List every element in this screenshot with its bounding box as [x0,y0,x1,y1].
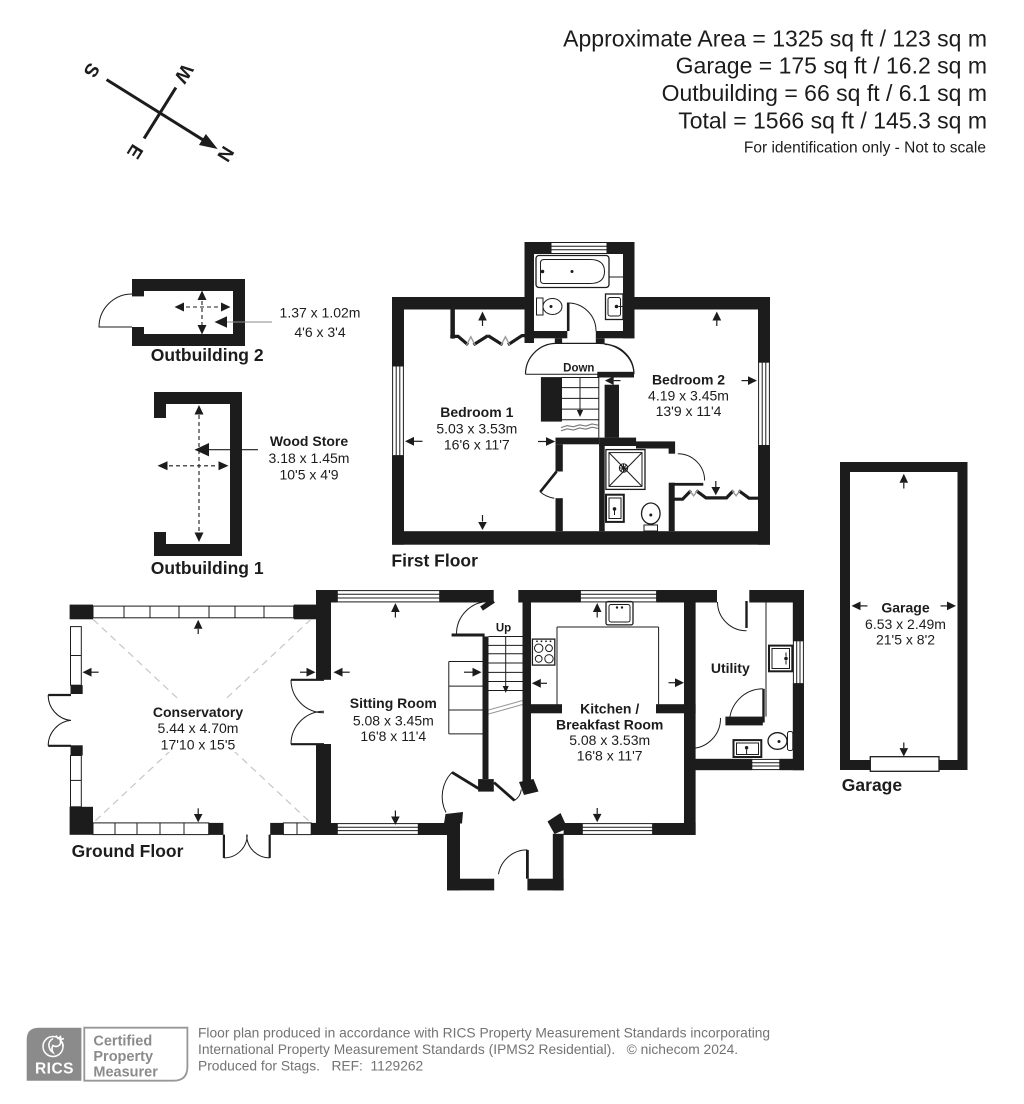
svg-text:Utility: Utility [711,660,750,676]
svg-text:Outbuilding 2: Outbuilding 2 [151,345,264,365]
svg-text:4'6 x 3'4: 4'6 x 3'4 [294,324,345,340]
svg-text:Garage: Garage [881,600,929,616]
svg-text:Breakfast Room: Breakfast Room [556,717,663,733]
svg-text:Up: Up [496,622,511,634]
svg-text:13'9 x 11'4: 13'9 x 11'4 [656,403,722,419]
svg-text:Outbuilding = 66 sq ft / 6.1 s: Outbuilding = 66 sq ft / 6.1 sq m [662,80,987,106]
svg-text:16'8 x 11'7: 16'8 x 11'7 [577,748,643,764]
svg-text:First Floor: First Floor [391,551,478,571]
svg-text:10'5 x 4'9: 10'5 x 4'9 [279,467,338,483]
svg-text:International Property Measure: International Property Measurement Stand… [198,1042,738,1057]
svg-text:Produced for Stags. REF: 11: Produced for Stags. REF: 1129262 [198,1059,423,1074]
svg-text:Floor plan produced in accorda: Floor plan produced in accordance with R… [198,1026,770,1041]
svg-text:5.08 x 3.45m: 5.08 x 3.45m [353,713,434,729]
svg-text:Wood Store: Wood Store [270,433,349,449]
svg-text:4.19 x 3.45m: 4.19 x 3.45m [648,388,729,404]
svg-text:6.53 x 2.49m: 6.53 x 2.49m [865,616,946,632]
svg-text:17'10 x 15'5: 17'10 x 15'5 [161,736,236,752]
svg-text:Ground Floor: Ground Floor [72,841,184,861]
svg-text:For identification only - Not: For identification only - Not to scale [744,140,986,157]
svg-text:Property: Property [93,1049,153,1065]
svg-text:5.03 x 3.53m: 5.03 x 3.53m [436,421,517,437]
svg-text:16'6 x 11'7: 16'6 x 11'7 [444,437,510,453]
svg-text:Outbuilding 1: Outbuilding 1 [151,558,264,578]
svg-text:21'5 x 8'2: 21'5 x 8'2 [876,632,935,648]
svg-text:Kitchen /: Kitchen / [580,701,639,717]
svg-text:Certified: Certified [93,1034,152,1050]
svg-text:Bedroom 2: Bedroom 2 [652,372,725,388]
svg-text:5.44 x 4.70m: 5.44 x 4.70m [158,720,239,736]
svg-text:3.18 x 1.45m: 3.18 x 1.45m [269,450,350,466]
svg-text:Approximate Area = 1325 sq ft: Approximate Area = 1325 sq ft / 123 sq m [563,26,987,52]
svg-text:Garage: Garage [842,775,903,795]
svg-text:Garage = 175 sq ft / 16.2 sq m: Garage = 175 sq ft / 16.2 sq m [676,53,987,79]
svg-text:RICS: RICS [35,1061,74,1078]
svg-text:Sitting Room: Sitting Room [350,695,437,711]
svg-text:Down: Down [563,362,594,374]
svg-text:1.37 x 1.02m: 1.37 x 1.02m [280,305,361,321]
svg-text:16'8 x 11'4: 16'8 x 11'4 [360,728,426,744]
svg-text:Total = 1566 sq ft / 145.3 sq: Total = 1566 sq ft / 145.3 sq m [678,107,987,133]
svg-text:Bedroom 1: Bedroom 1 [440,404,513,420]
svg-text:Measurer: Measurer [93,1065,158,1081]
svg-text:Conservatory: Conservatory [153,704,243,720]
svg-text:5.08 x 3.53m: 5.08 x 3.53m [569,732,650,748]
